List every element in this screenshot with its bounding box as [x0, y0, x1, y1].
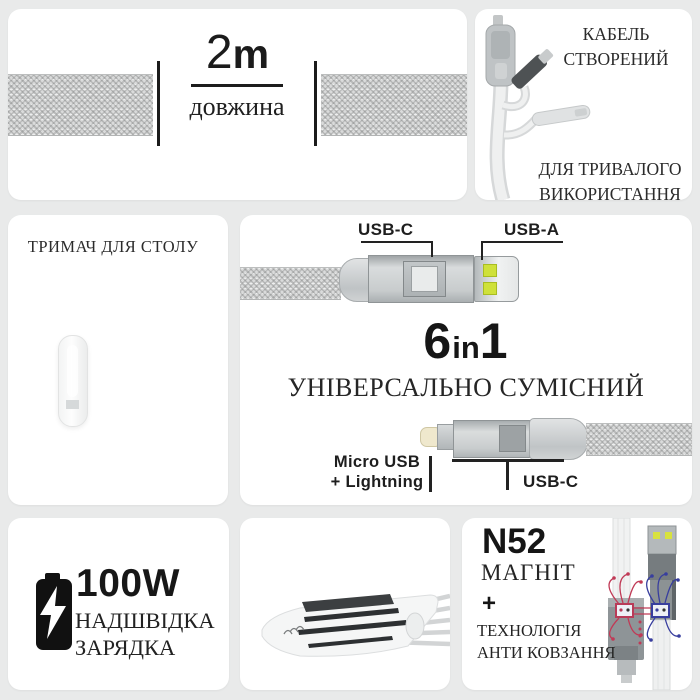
braided-cable-texture [586, 423, 692, 456]
six-in-one-badge: 6in1 [240, 316, 692, 366]
card-fast-charge: 100W НАДШВІДКА ЗАРЯДКА [8, 518, 229, 690]
card-desk-holder: ТРИМАЧ ДЛЯ СТОЛУ [8, 215, 228, 505]
durable-title-line2: СТВОРЕНИЙ [554, 47, 678, 72]
card-cable-length: 2m довжина [8, 9, 467, 200]
label-usb-c-top: USB-C [358, 220, 413, 240]
label-micro-usb-lightning: Micro USB + Lightning [324, 453, 430, 493]
lightning-plug-tip [420, 427, 438, 447]
charge-power-value: 100W [76, 564, 180, 603]
desk-holder-illustration [58, 335, 88, 427]
length-number: 2 [206, 26, 233, 79]
usb-a-plug [474, 256, 519, 302]
braided-cable-texture [240, 267, 341, 300]
card-six-in-one: USB-C USB-A 6in1 УНІВЕРСАЛЬНО СУМІСНИЙ M… [240, 215, 692, 505]
callout-line-micro [429, 456, 432, 492]
compatibility-subtitle: УНІВЕРСАЛЬНО СУМІСНИЙ [240, 373, 692, 403]
charge-label-line1: НАДШВІДКА [75, 608, 215, 634]
usb-a-contact [483, 282, 497, 295]
label-micro-usb: Micro USB [324, 453, 430, 473]
card-durable-cable: КАБЕЛЬ СТВОРЕНИЙ ДЛЯ ТРИВАЛОГО ВИКОРИСТА… [475, 9, 692, 200]
durable-footer-line2: ВИКОРИСТАННЯ [534, 182, 686, 200]
durable-title: КАБЕЛЬ СТВОРЕНИЙ [554, 22, 678, 73]
stacked-connectors-illustration [240, 518, 450, 690]
magnet-tech-line1: ТЕХНОЛОГІЯ [477, 621, 581, 641]
lightning-plug-collar [437, 424, 454, 450]
magnet-label: МАГНІТ [481, 560, 576, 586]
battery-charging-icon [34, 573, 76, 651]
label-usb-a: USB-A [504, 220, 559, 240]
callout-bracket-usb-a [481, 241, 563, 260]
durable-footer: ДЛЯ ТРИВАЛОГО ВИКОРИСТАННЯ [534, 157, 686, 200]
charge-label-line2: ЗАРЯДКА [75, 635, 175, 661]
product-infographic: 2m довжина [0, 0, 700, 700]
durable-title-line1: КАБЕЛЬ [554, 22, 678, 47]
length-value: 2m [153, 29, 321, 77]
callout-bracket-usb-c [361, 241, 433, 257]
badge-in: in [452, 330, 480, 365]
length-text: 2m довжина [153, 29, 321, 122]
micro-usb-adapter-slot [499, 425, 526, 452]
badge-number: 1 [480, 313, 509, 369]
card-connector-stack [240, 518, 450, 690]
callout-bracket-usb-c-bottom [506, 459, 509, 490]
card-magnet: N52 МАГНІТ + ТЕХНОЛОГІЯ АНТИ КОВЗАННЯ [462, 518, 692, 690]
magnet-grade: N52 [482, 524, 546, 559]
holder-title: ТРИМАЧ ДЛЯ СТОЛУ [8, 237, 218, 257]
usb-c-plug-slot [411, 266, 438, 292]
magnet-tech-line2: АНТИ КОВЗАННЯ [477, 643, 616, 663]
durable-footer-line1: ДЛЯ ТРИВАЛОГО [534, 157, 686, 182]
badge-number: 6 [423, 313, 452, 369]
length-unit: m [233, 31, 268, 77]
label-lightning: + Lightning [324, 473, 430, 493]
length-label: довжина [153, 92, 321, 122]
usb-a-contact [483, 264, 497, 277]
connector-cap [529, 418, 588, 460]
label-usb-c-bottom: USB-C [523, 472, 578, 492]
divider-line [191, 84, 283, 87]
plus-icon: + [482, 590, 496, 618]
